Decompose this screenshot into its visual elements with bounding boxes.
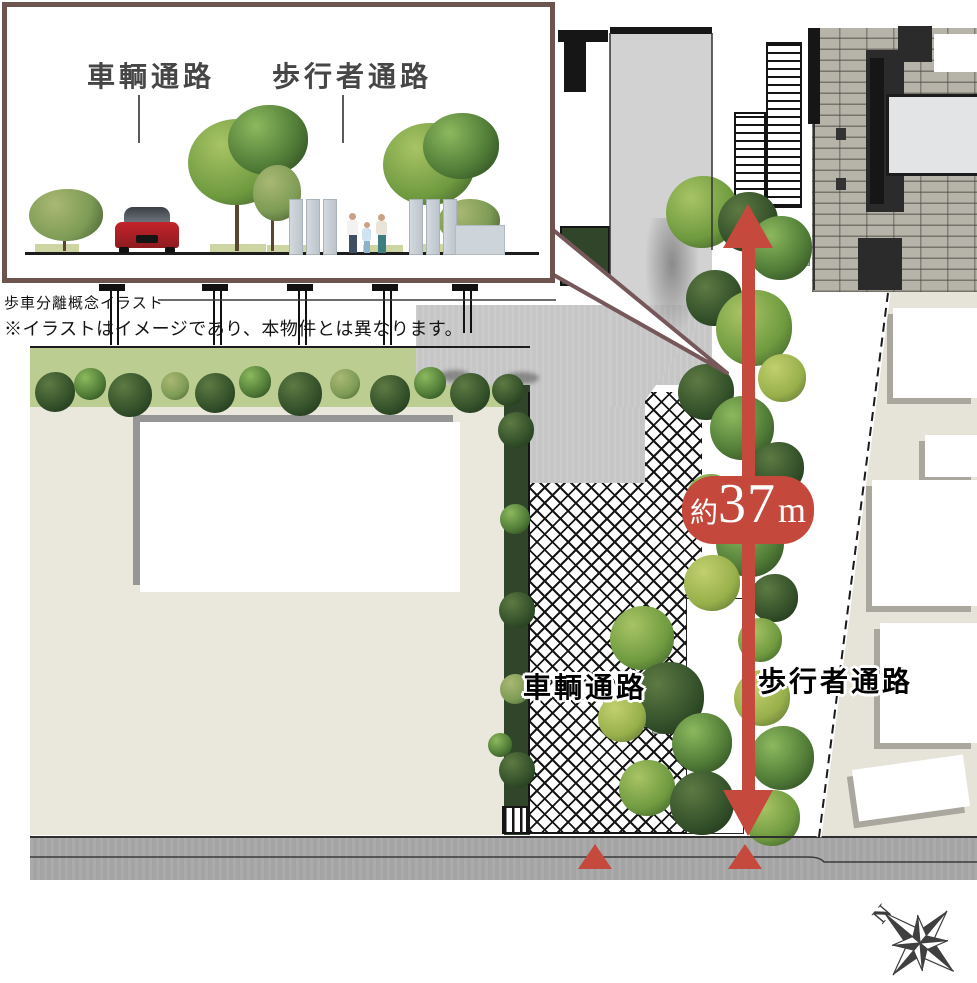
panel bbox=[306, 199, 320, 255]
person-legs bbox=[378, 235, 386, 253]
right-building-footprint bbox=[893, 308, 977, 398]
screen-panels bbox=[289, 199, 337, 253]
tree bbox=[758, 354, 806, 402]
right-building-footprint bbox=[925, 435, 977, 477]
wall-pier bbox=[836, 178, 846, 190]
road-marker-triangle bbox=[728, 844, 762, 869]
screen-panels bbox=[409, 199, 457, 253]
bush bbox=[35, 372, 75, 412]
tree bbox=[750, 726, 814, 790]
tree bbox=[423, 113, 499, 179]
person-legs bbox=[364, 241, 370, 253]
bush bbox=[499, 592, 535, 628]
road-marker-triangle bbox=[578, 844, 612, 869]
pedestrian-path-label: 歩行者通路 bbox=[758, 660, 913, 700]
bush bbox=[239, 366, 271, 398]
stair-run bbox=[766, 42, 802, 208]
interior-room bbox=[886, 94, 977, 176]
planter bbox=[560, 226, 610, 286]
inset-disclaimer: ※イラストはイメージであり、本物件とは異なります。 bbox=[4, 315, 463, 341]
person-torso bbox=[347, 220, 358, 235]
concept-inset-panel: 車輌通路 歩行者通路 bbox=[2, 2, 555, 283]
wall bbox=[564, 42, 586, 92]
people-illustration bbox=[347, 213, 391, 253]
car-wheel bbox=[165, 247, 175, 253]
tree bbox=[684, 555, 740, 611]
vehicle-path-label: 車輌通路 bbox=[523, 666, 647, 706]
car-illustration bbox=[115, 207, 179, 253]
leader-line bbox=[138, 95, 140, 143]
inset-pedestrian-label: 歩行者通路 bbox=[272, 55, 432, 95]
site-plan-figure: 約37m 車輌通路 歩行者通路 車輌通路 歩行者通路 bbox=[0, 0, 977, 983]
distance-prefix: 約 bbox=[690, 491, 718, 531]
tree bbox=[29, 189, 103, 241]
distance-value: 37 bbox=[718, 476, 776, 532]
distance-unit: m bbox=[778, 489, 806, 531]
bush bbox=[488, 733, 512, 757]
wall bbox=[858, 238, 902, 290]
bush bbox=[450, 373, 490, 413]
measurement-arrowhead-up bbox=[723, 204, 773, 248]
measurement-arrowhead-down bbox=[723, 790, 773, 836]
front-road bbox=[30, 836, 977, 880]
wall bbox=[898, 26, 932, 62]
bush bbox=[492, 374, 524, 406]
bush bbox=[278, 372, 322, 416]
bush bbox=[414, 367, 446, 399]
inset-caption: 歩車分離概念イラスト bbox=[4, 292, 164, 313]
bush bbox=[499, 752, 535, 788]
wall bbox=[870, 58, 884, 204]
bush bbox=[370, 375, 410, 415]
bush bbox=[108, 373, 152, 417]
wall bbox=[610, 27, 712, 34]
curb-hatch bbox=[502, 806, 528, 834]
bush bbox=[500, 504, 530, 534]
right-building-footprint bbox=[872, 480, 977, 606]
panel bbox=[409, 199, 423, 255]
tree bbox=[228, 105, 308, 175]
tree bbox=[672, 713, 732, 773]
tree bbox=[619, 760, 675, 816]
bush bbox=[195, 373, 235, 413]
panel bbox=[323, 199, 337, 255]
grass-patch bbox=[35, 244, 79, 252]
person-torso bbox=[362, 228, 371, 241]
car-grille bbox=[136, 235, 158, 243]
leader-line bbox=[342, 95, 344, 143]
bush bbox=[330, 369, 360, 399]
wall bbox=[558, 30, 608, 42]
car-wheel bbox=[119, 247, 129, 253]
panel bbox=[426, 199, 440, 255]
tree bbox=[750, 574, 798, 622]
bench-block bbox=[455, 225, 505, 255]
tree bbox=[610, 606, 674, 670]
bush bbox=[161, 372, 189, 400]
compass-rose-icon: N bbox=[852, 893, 977, 983]
inset-vehicle-label: 車輌通路 bbox=[87, 55, 215, 95]
bush bbox=[74, 368, 106, 400]
distance-badge: 約37m bbox=[682, 476, 814, 544]
wall-pier bbox=[836, 128, 846, 140]
person-head bbox=[378, 214, 385, 221]
person-torso bbox=[376, 221, 387, 235]
bush bbox=[498, 412, 534, 448]
person-legs bbox=[349, 235, 357, 253]
person-head bbox=[349, 213, 356, 220]
panel bbox=[289, 199, 303, 255]
left-building-footprint bbox=[140, 422, 460, 592]
court-opening bbox=[934, 34, 977, 72]
wall bbox=[808, 28, 820, 124]
